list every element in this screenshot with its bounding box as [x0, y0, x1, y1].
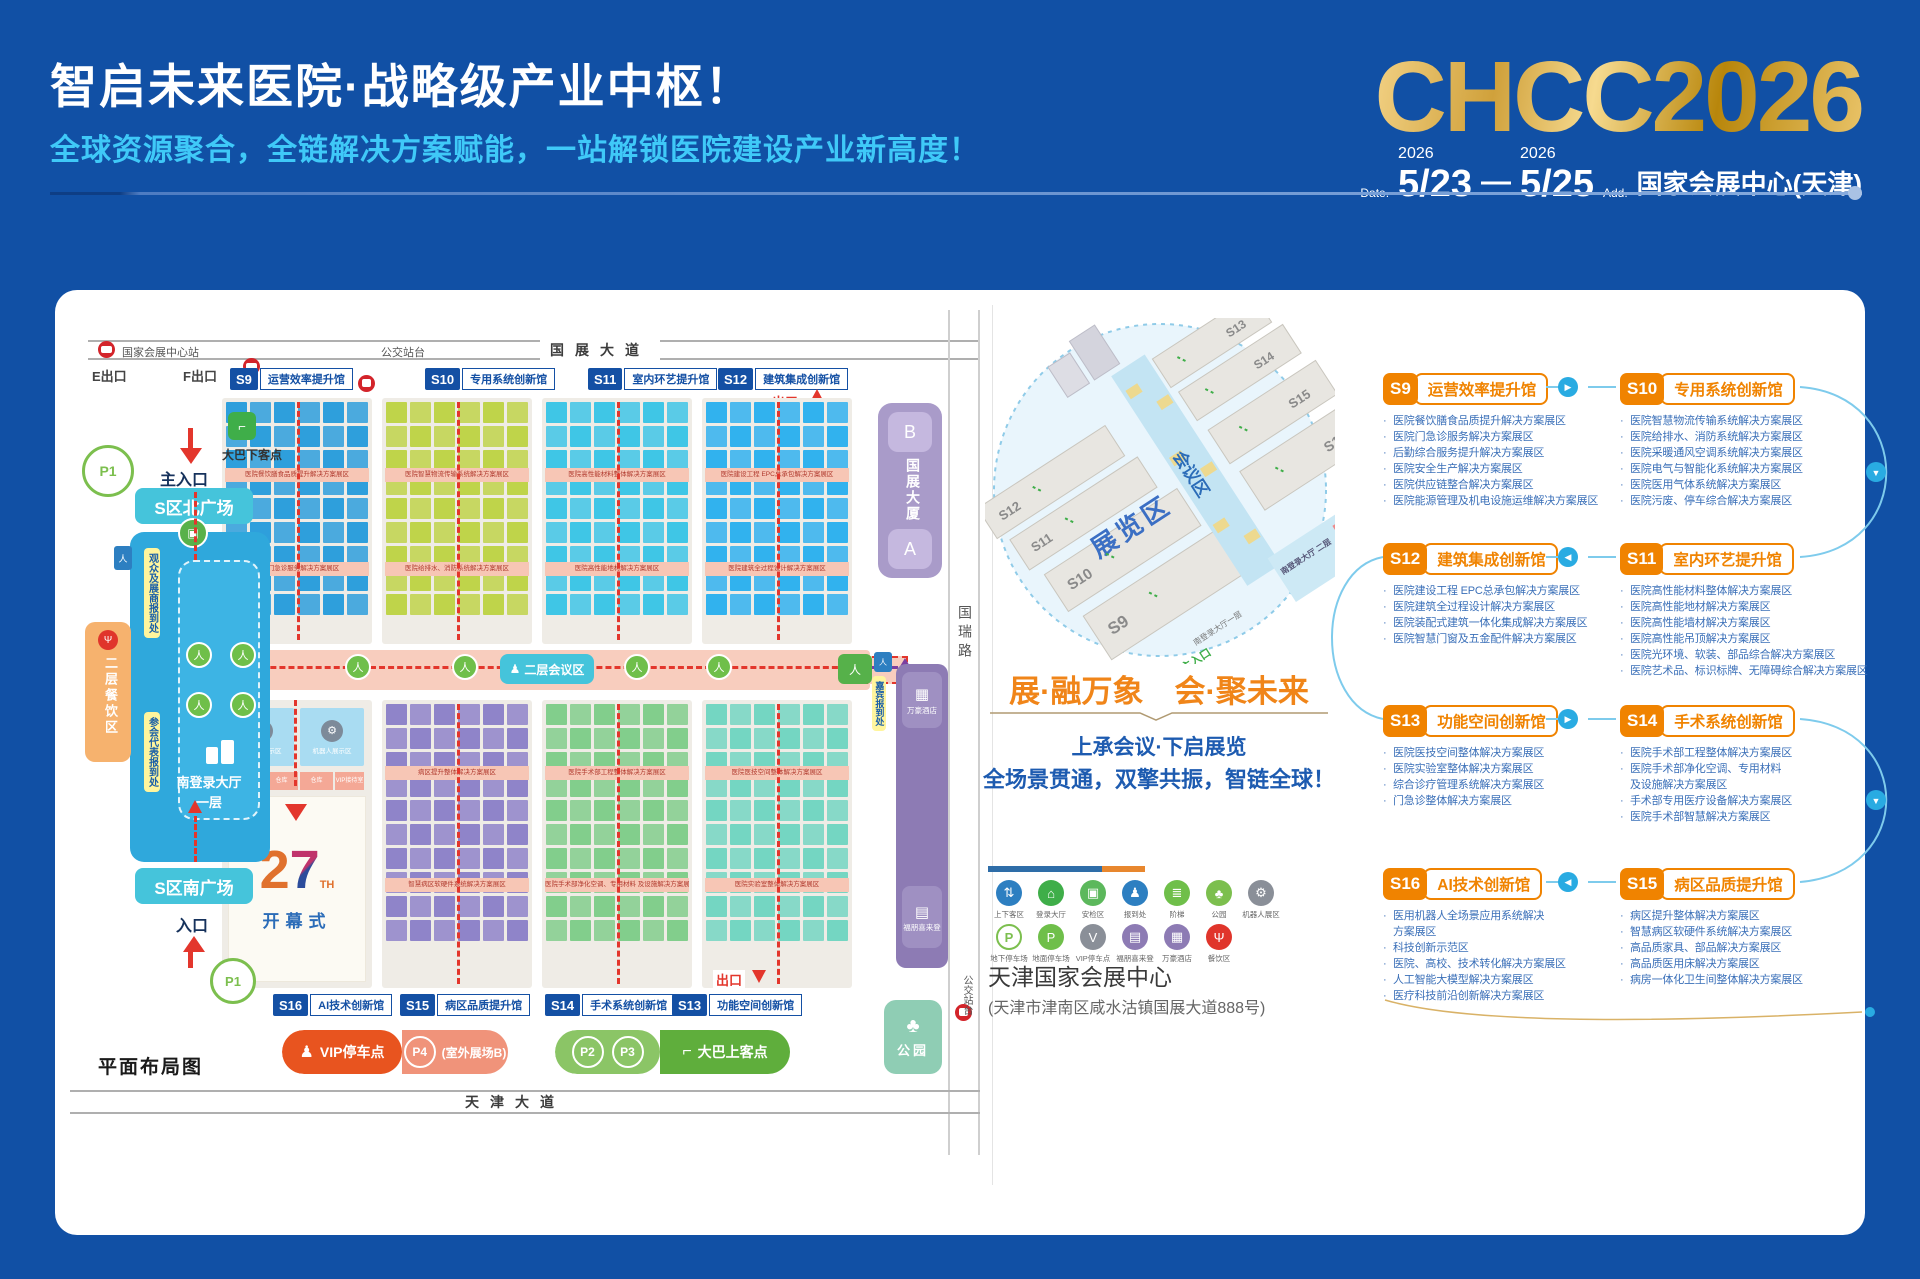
marriott-hotel-icon: ▦万豪酒店 [902, 672, 942, 728]
route-dashed [457, 704, 460, 984]
section-item: ·医院采暖通风空调系统解决方案展区 [1620, 445, 1870, 461]
section-s9: S9运营效率提升馆 ·医院餐饮膳食品质提升解决方案展区·医院门急诊服务解决方案展… [1383, 373, 1633, 509]
vip-parking-segment: ♟VIP停车点 [282, 1030, 402, 1074]
svg-text:▼: ▼ [1872, 468, 1881, 478]
dining-icon: Ψ [98, 630, 118, 650]
panel-line1: 上承会议·下启展览 [988, 731, 1330, 761]
section-item: ·医院手术部净化空调、专用材料 及设施解决方案展区 [1620, 761, 1870, 793]
connector-line [1588, 556, 1616, 558]
section-item: ·医院智慧门窗及五金配件解决方案展区 [1383, 631, 1633, 647]
route-arrow-lobby [188, 800, 202, 813]
section-header-s12: S12建筑集成创新馆 [1383, 543, 1558, 575]
section-item: ·医院建筑全过程设计解决方案展区 [1383, 599, 1633, 615]
section-item: ·医院智慧物流传输系统解决方案展区 [1620, 413, 1870, 429]
section-item: ·医院、高校、技术转化解决方案展区 [1383, 956, 1633, 972]
section-item: ·医院高性能吊顶解决方案展区 [1620, 631, 1870, 647]
poster: 智启未来医院·战略级产业中枢！ 全球资源聚合，全链解决方案赋能，一站解锁医院建设… [0, 0, 1920, 1279]
hall-s12: 医院建设工程 EPC总承包解决方案展区医院建筑全过程设计解决方案展区 [702, 398, 852, 644]
route-dashed [297, 402, 300, 640]
header-divider-dot [1848, 186, 1862, 200]
section-items-s9: ·医院餐饮膳食品质提升解决方案展区·医院门急诊服务解决方案展区·后勤综合服务提升… [1383, 413, 1633, 509]
lobby-building-icon [206, 740, 236, 764]
hall-label-s15: S15病区品质提升馆 [400, 994, 530, 1016]
route-dashed [457, 402, 460, 640]
escalator-icon: 人 [624, 654, 650, 680]
expo-tower: B 国展大厦 A [878, 403, 942, 578]
hall-label-s10: S10专用系统创新馆 [425, 368, 555, 390]
iso-overview-map: 餐饮区 S12 S11 S10 S9 S13 S14 S15 S16 展览区 会… [985, 318, 1335, 664]
section-s16: S16AI技术创新馆 ·医用机器人全场景应用系统解决 方案展区·科技创新示范区·… [1383, 868, 1633, 1004]
visitor-registration-label: 观众及展商报到处 [144, 548, 160, 638]
main-entrance-arrow-stem [188, 428, 193, 450]
conference-area-pill: ♟二层会议区 [500, 654, 594, 684]
bottom-road-name: 天津大道 [455, 1092, 575, 1112]
section-item: ·综合诊疗管理系统解决方案展区 [1383, 777, 1633, 793]
hotel-building: ▦万豪酒店 ▤福朋喜来登 [896, 664, 948, 968]
chcc-logo: CHCC2026 [1375, 50, 1862, 145]
section-item: ·医院手术部智慧解决方案展区 [1620, 809, 1870, 825]
section-item: ·科技创新示范区 [1383, 940, 1633, 956]
route-dashed [777, 402, 780, 640]
entrance-label: 入口 [176, 912, 208, 936]
map-caption: 平面布局图 [98, 1052, 203, 1079]
section-item: ·手术部专用医疗设备解决方案展区 [1620, 793, 1870, 809]
panel-line2: 全场景贯通，双擎共振，智链全球！ [975, 762, 1343, 794]
p4-segment: P4(室外展场B) [402, 1030, 508, 1074]
flow-node-1: ▶ [1558, 377, 1578, 397]
section-items-s13: ·医院医技空间整体解决方案展区·医院实验室整体解决方案展区·综合诊疗管理系统解决… [1383, 745, 1633, 809]
route-dashed-south [194, 816, 197, 862]
escalator-icon: 人 [706, 654, 732, 680]
storage-room: 仓库 [300, 772, 333, 790]
bottom-road-line2 [70, 1112, 980, 1114]
date-start: 5/23 [1398, 165, 1472, 203]
section-item: ·后勤综合服务提升解决方案展区 [1383, 445, 1633, 461]
escalator-icon: 人 [230, 642, 256, 668]
section-items-s10: ·医院智慧物流传输系统解决方案展区·医院给排水、消防系统解决方案展区·医院采暖通… [1620, 413, 1870, 509]
section-item: ·医院安全生产解决方案展区 [1383, 461, 1633, 477]
hall-s14: 医院手术部工程整体解决方案展区医院手术部净化空调、专用材料 及设施解决方案展区 [542, 700, 692, 988]
flow-node-2: ◀ [1558, 547, 1578, 567]
flow-node-4: ◀ [1558, 872, 1578, 892]
venue-address: (天津市津南区咸水沽镇国展大道888号) [988, 994, 1265, 1018]
exit-bottom-label: 出口 [713, 970, 745, 989]
section-item: ·人工智能大模型解决方案展区 [1383, 972, 1633, 988]
bus-icon: ⌐ [682, 1043, 691, 1061]
p1-parking-icon-south: P1 [210, 958, 256, 1004]
flow-node-3: ▶ [1558, 709, 1578, 729]
bus-boarding-segment: ⌐大巴上客点 [660, 1030, 790, 1074]
dining-icon: Ψ餐饮区 [1198, 924, 1240, 964]
park-block: ♣ 公园 [884, 1000, 942, 1074]
opening-label: 开幕式 [229, 907, 365, 932]
section-item: ·医院手术部工程整体解决方案展区 [1620, 745, 1870, 761]
robot-icon: ⚙ [321, 720, 343, 742]
p4-icon: P4 [404, 1036, 436, 1068]
section-items-s14: ·医院手术部工程整体解决方案展区·医院手术部净化空调、专用材料 及设施解决方案展… [1620, 745, 1870, 825]
hall-label-s16: S16AI技术创新馆 [273, 994, 392, 1016]
hall-s11: 医院高性能材料整体解决方案展区医院高性能地材解决方案展区 [542, 398, 692, 644]
side-road-name: 国瑞路 [955, 605, 975, 662]
section-item: ·医院污废、停车综合解决方案展区 [1620, 493, 1870, 509]
section-header-s9: S9运营效率提升馆 [1383, 373, 1548, 405]
section-header-s11: S11室内环艺提升馆 [1620, 543, 1794, 575]
section-items-s11: ·医院高性能材料整体解决方案展区·医院高性能地材解决方案展区·医院高性能墙材解决… [1620, 583, 1870, 679]
stairs-icon: ≣阶梯 [1156, 880, 1198, 920]
connector-line [1588, 881, 1616, 883]
section-items-s15: ·病区提升整体解决方案展区·智慧病区软硬件系统解决方案展区·高品质家具、部品解决… [1620, 908, 1870, 988]
section-s15: S15病区品质提升馆 ·病区提升整体解决方案展区·智慧病区软硬件系统解决方案展区… [1620, 868, 1870, 988]
hall-label-s13: S13功能空间创新馆 [672, 994, 802, 1016]
section-item: ·门急诊整体解决方案展区 [1383, 793, 1633, 809]
section-s14: S14手术系统创新馆 ·医院手术部工程整体解决方案展区·医院手术部净化空调、专用… [1620, 705, 1870, 825]
page-subtitle: 全球资源聚合，全链解决方案赋能，一站解锁医院建设产业新高度！ [50, 125, 980, 169]
section-item: ·医院餐饮膳食品质提升解决方案展区 [1383, 413, 1633, 429]
route-dashed-s16 [294, 700, 297, 786]
route-dashed [777, 704, 780, 984]
event-venue: 国家会展中心(天津) [1637, 164, 1862, 203]
main-entrance-arrow [180, 448, 202, 464]
section-header-s14: S14手术系统创新馆 [1620, 705, 1795, 737]
section-header-s16: S16AI技术创新馆 [1383, 868, 1542, 900]
park-icon: ♣公园 [1198, 880, 1240, 920]
section-s13: S13功能空间创新馆 ·医院医技空间整体解决方案展区·医院实验室整体解决方案展区… [1383, 705, 1633, 809]
page-title: 智启未来医院·战略级产业中枢！ [50, 48, 754, 117]
section-item: ·医院电气与智能化系统解决方案展区 [1620, 461, 1870, 477]
section-s12: S12建筑集成创新馆 ·医院建设工程 EPC总承包解决方案展区·医院建筑全过程设… [1383, 543, 1633, 647]
section-header-s13: S13功能空间创新馆 [1383, 705, 1558, 737]
venue-name: 天津国家会展中心 [988, 958, 1172, 992]
section-item: ·医院供应链整合解决方案展区 [1383, 477, 1633, 493]
section-item: ·医院门急诊服务解决方案展区 [1383, 429, 1633, 445]
walkway-icon: 人 [838, 654, 872, 684]
bus-boarding-pill: P2P3 ⌐大巴上客点 [555, 1030, 790, 1074]
year-start: 2026 [1398, 146, 1434, 162]
side-road-line2 [978, 310, 980, 1155]
legend-bar [988, 866, 1145, 872]
section-item: ·医院高性能地材解决方案展区 [1620, 599, 1870, 615]
escalator-icon: 人 [452, 654, 478, 680]
section-item: ·医疗科技前沿创新解决方案展区 [1383, 988, 1633, 1004]
section-item: ·智慧病区软硬件系统解决方案展区 [1620, 924, 1870, 940]
robot-zone: ⚙ 机器人展示区 [300, 708, 364, 766]
registration-icon: ♟报到处 [1114, 880, 1156, 920]
security-check-icon: ▣ [178, 518, 208, 548]
hall-s15: 病区提升整体解决方案展区智慧病区软硬件系统解决方案展区 [382, 700, 532, 988]
section-item: ·医院医技空间整体解决方案展区 [1383, 745, 1633, 761]
section-s10: S10专用系统创新馆 ·医院智慧物流传输系统解决方案展区·医院给排水、消防系统解… [1620, 373, 1870, 509]
escalator-icon: 人 [230, 692, 256, 718]
main-entrance-label: 主入口 [160, 466, 208, 490]
entrance-arrow [183, 936, 205, 952]
top-road-name: 国展大道 [540, 340, 660, 360]
header-divider [50, 192, 1862, 195]
bus-stop-label: 公交站台 [381, 344, 425, 360]
section-header-s10: S10专用系统创新馆 [1620, 373, 1795, 405]
lobby-name: 南登录大厅 [130, 772, 270, 791]
section-item: ·病区提升整体解决方案展区 [1620, 908, 1870, 924]
p3-icon: P3 [612, 1036, 644, 1068]
south-plaza: S区南广场 [135, 868, 253, 904]
four-points-hotel-icon: ▤福朋喜来登 [902, 886, 942, 948]
bus-stop-icon [358, 375, 375, 392]
route-dashed [617, 704, 620, 984]
exit-e-label: E出口 [92, 366, 127, 385]
section-items-s12: ·医院建设工程 EPC总承包解决方案展区·医院建筑全过程设计解决方案展区·医院装… [1383, 583, 1633, 647]
section-s11: S11室内环艺提升馆 ·医院高性能材料整体解决方案展区·医院高性能地材解决方案展… [1620, 543, 1870, 679]
escalator-icon: 人 [345, 654, 371, 680]
year-end: 2026 [1520, 146, 1556, 162]
exit-f-label: F出口 [183, 366, 217, 385]
route-dashed [617, 402, 620, 640]
tower-a: A [888, 529, 932, 569]
wc-icon: 人 [114, 546, 132, 570]
section-item: ·医院装配式建筑一体化集成解决方案展区 [1383, 615, 1633, 631]
pickup-dropoff-icon: ⇅上下客区 [988, 880, 1030, 920]
section-item: ·医院高性能材料整体解决方案展区 [1620, 583, 1870, 599]
panel-slogan: 展·融万象 会·聚未来 [988, 666, 1330, 711]
section-items-s16: ·医用机器人全场景应用系统解决 方案展区·科技创新示范区·医院、高校、技术转化解… [1383, 908, 1633, 1004]
vip-person-icon: ♟ [300, 1042, 314, 1062]
hall-label-s12: S12建筑集成创新馆 [718, 368, 848, 390]
slogan-divider [988, 706, 1330, 722]
section-item: ·医院给排水、消防系统解决方案展区 [1620, 429, 1870, 445]
p1-parking-icon: P1 [82, 445, 134, 497]
section-item: ·医院医用气体系统解决方案展区 [1620, 477, 1870, 493]
section-item: ·医院实验室整体解决方案展区 [1383, 761, 1633, 777]
guest-registration-label: 嘉宾报到处 [872, 676, 886, 731]
park-tree-icon: ♣ [906, 1015, 919, 1038]
section-item: ·医院艺术品、标识标牌、无障碍综合解决方案展区 [1620, 663, 1870, 679]
section-item: ·高品质家具、部品解决方案展区 [1620, 940, 1870, 956]
hall-label-s14: S14手术系统创新馆 [545, 994, 675, 1016]
entrance-arrow-stem [188, 950, 193, 968]
section-header-s15: S15病区品质提升馆 [1620, 868, 1795, 900]
hall-s13: 医院医技空间整体解决方案展区医院实验室整体解决方案展区 [702, 700, 852, 988]
hall-label-s9: S9运营效率提升馆 [230, 368, 353, 390]
bus-drop-icon: ⌐ [228, 412, 256, 440]
connector-line [1588, 386, 1616, 388]
side-bus-stop-label: 公交站台 [959, 975, 974, 1015]
route-dashed-north [194, 492, 197, 560]
section-item: ·医院建设工程 EPC总承包解决方案展区 [1383, 583, 1633, 599]
date-dash: — [1481, 165, 1511, 203]
side-road-line [948, 310, 950, 1155]
section-item: ·高品质医用床解决方案展区 [1620, 956, 1870, 972]
p2-p3-segment: P2P3 [555, 1030, 660, 1074]
robot-zone-icon: ⚙机器人展区 [1240, 880, 1282, 920]
top-road-line [88, 340, 980, 342]
legend-row-1: ⇅上下客区⌂登录大厅▣安检区♟报到处≣阶梯♣公园⚙机器人展区 [988, 880, 1282, 920]
security-check-icon: ▣安检区 [1072, 880, 1114, 920]
section-item: ·医院高性能墙材解决方案展区 [1620, 615, 1870, 631]
tower-b: B [888, 412, 932, 452]
section-item: ·医用机器人全场景应用系统解决 方案展区 [1383, 908, 1633, 940]
section-item: ·医院能源管理及机电设施运维解决方案展区 [1383, 493, 1633, 509]
vip-room: VIP接待室 [335, 772, 364, 790]
metro-station-label: 国家会展中心站 [122, 344, 199, 360]
dining-area: Ψ 二层餐饮区 [85, 622, 131, 762]
login-hall-icon: ⌂登录大厅 [1030, 880, 1072, 920]
section-item: ·医院光环境、软装、部品综合解决方案展区 [1620, 647, 1870, 663]
connector-line [1588, 718, 1616, 720]
bus-drop-label: 大巴下客点 [222, 446, 282, 463]
section-item: ·病房一体化卫生间整体解决方案展区 [1620, 972, 1870, 988]
guest-icon: 人 [874, 652, 892, 672]
escalator-icon: 人 [186, 692, 212, 718]
p2-icon: P2 [572, 1036, 604, 1068]
date-end: 5/25 [1520, 165, 1594, 203]
exit-bottom-arrow [752, 970, 766, 983]
metro-icon [98, 341, 115, 358]
hall-label-s11: S11室内环艺提升馆 [588, 368, 717, 390]
vip-parking-pill: ♟VIP停车点 P4(室外展场B) [282, 1030, 508, 1074]
top-road-line2 [88, 358, 980, 360]
escalator-icon: 人 [186, 642, 212, 668]
registration-building: ▣ 人 观众及展商报到处 参会代表报到处 人 人 人 人 南登录大厅 一层 [130, 532, 270, 862]
hall-s10: 医院智慧物流传输系统解决方案展区医院给排水、消防系统解决方案展区 [382, 398, 532, 644]
route-arrow-opening [285, 804, 307, 821]
svg-text:▼: ▼ [1872, 796, 1881, 806]
people-icon: ♟ [510, 662, 521, 676]
